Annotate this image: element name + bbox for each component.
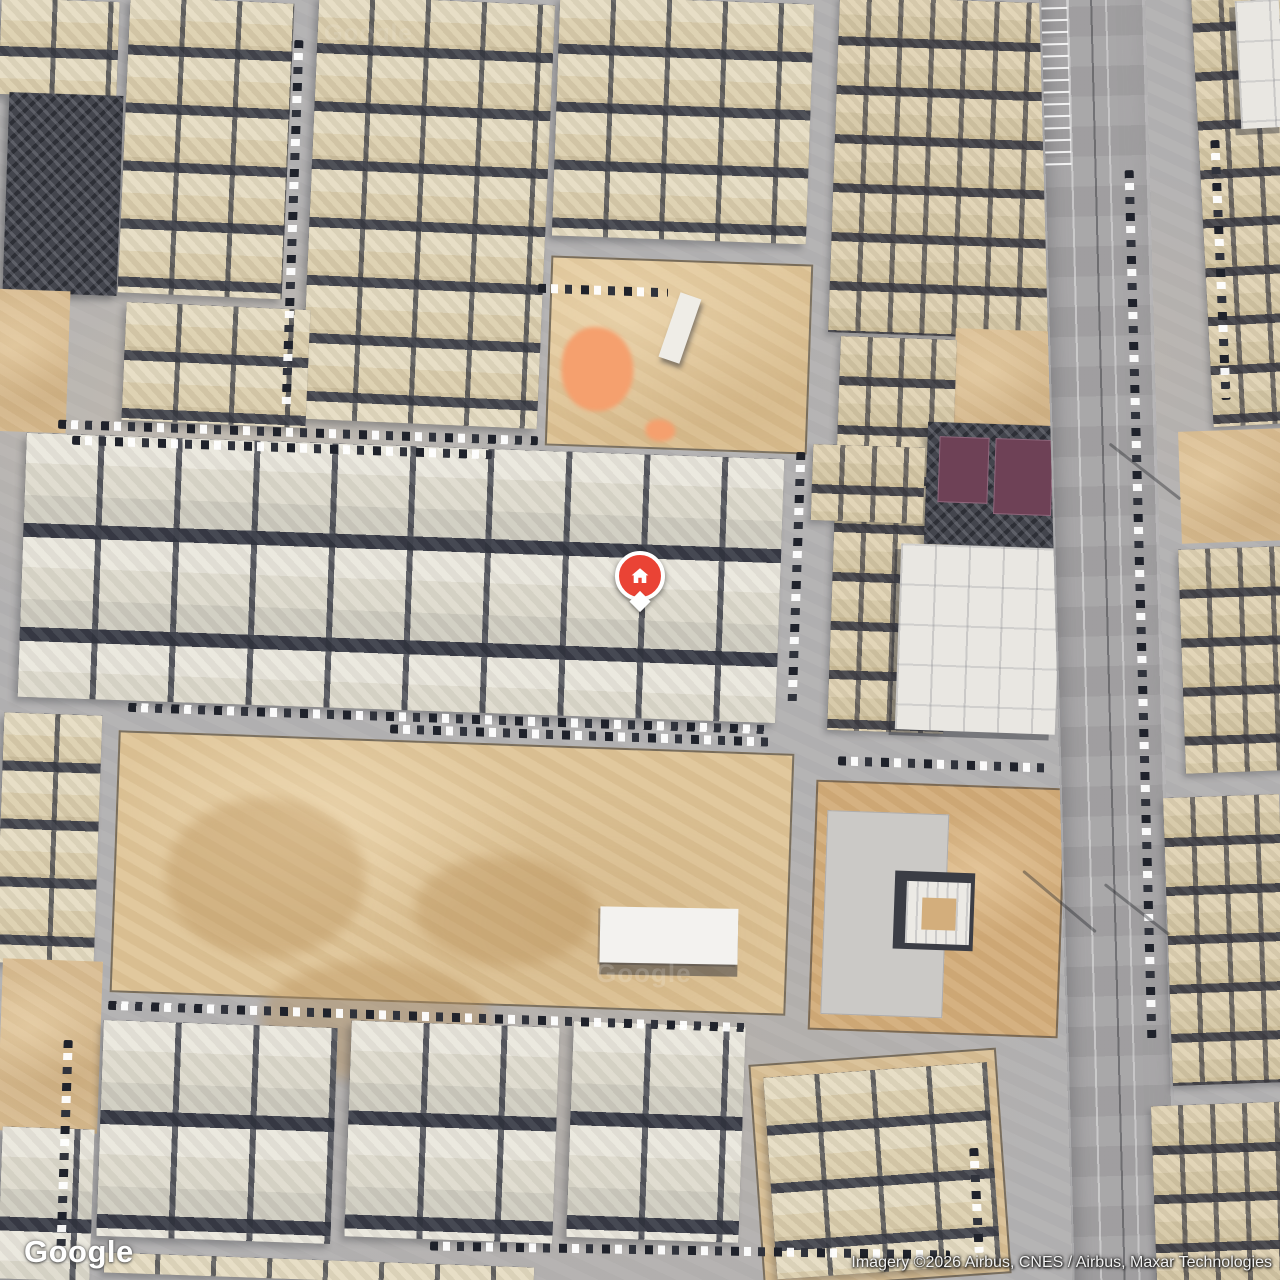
satellite-map[interactable]: GoogleGoogle — [0, 0, 1280, 1280]
tl-villas-b — [118, 0, 295, 299]
home-icon — [628, 564, 652, 588]
highway — [1039, 0, 1180, 1280]
tr-villas-a — [828, 0, 1066, 340]
walled-villas-inner — [763, 1062, 1001, 1279]
r-white-building — [1235, 0, 1280, 129]
tr-sand — [952, 328, 1062, 438]
r-villas-b — [1178, 546, 1280, 773]
bottom-villas-b — [344, 1020, 559, 1243]
map-viewport: GoogleGoogle Google Imagery ©2026 Airbus… — [0, 0, 1280, 1280]
warehouse — [599, 906, 738, 964]
google-logo[interactable]: Google — [24, 1234, 134, 1270]
tl-villas-a — [0, 0, 120, 98]
dirt-mound — [413, 853, 597, 969]
dirt-mound — [163, 794, 368, 961]
tm-villas — [552, 0, 814, 244]
bottom-villas-c — [566, 1021, 745, 1243]
white-compound — [895, 543, 1061, 734]
parked-cars — [788, 452, 806, 704]
orange-patch-small — [645, 419, 676, 442]
sports-court-a — [937, 436, 989, 504]
left-sand-b — [0, 958, 103, 1133]
site-shed — [658, 292, 701, 363]
school-compound — [808, 780, 1067, 1039]
mid-villas — [18, 433, 785, 723]
imagery-attribution: Imagery ©2026 Airbus, CNES / Airbus, Max… — [851, 1254, 1272, 1272]
tl-villas-c — [301, 0, 555, 429]
map-pin-home[interactable] — [615, 551, 665, 601]
sports-court-b — [993, 438, 1054, 516]
r-villas-c — [1163, 794, 1280, 1086]
parked-cars — [838, 756, 1053, 772]
school-courtyard — [921, 897, 956, 930]
r-sand — [1178, 428, 1280, 544]
left-villas-mid — [0, 712, 102, 965]
parking-bays — [1041, 0, 1071, 165]
orange-patch — [560, 326, 635, 412]
rubble-block — [3, 92, 124, 296]
courts-building — [924, 422, 1062, 549]
construction-lot — [110, 730, 795, 1015]
bottom-villas-sliver — [104, 1253, 534, 1280]
left-sand-a — [0, 289, 70, 434]
bottom-villas-a — [96, 1020, 337, 1244]
mid-villas-east — [811, 444, 926, 524]
